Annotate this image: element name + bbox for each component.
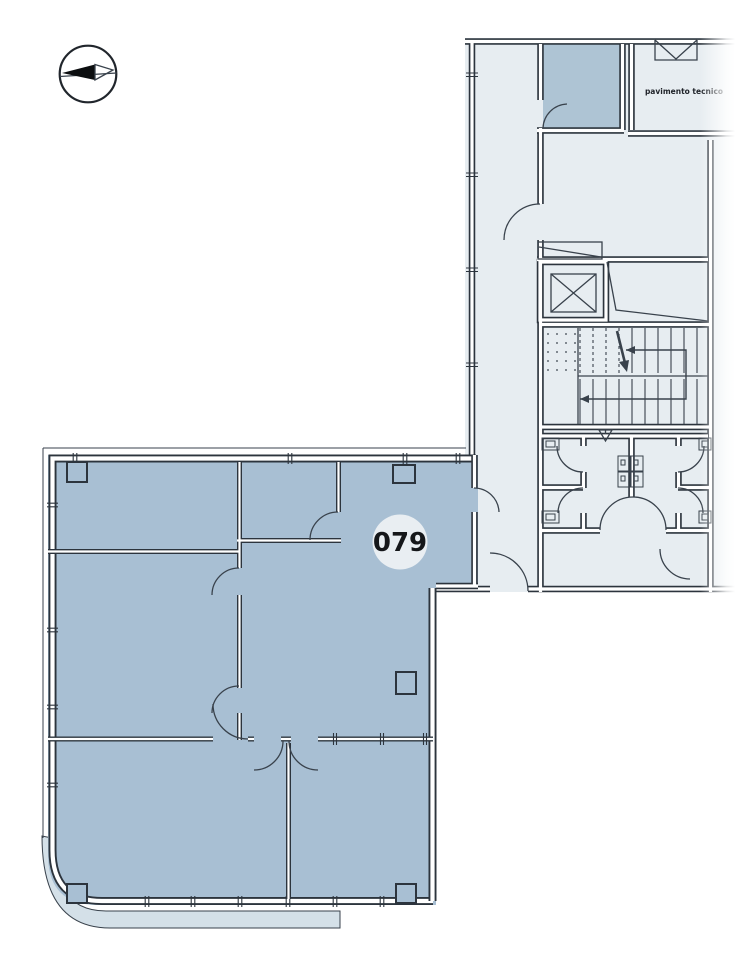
unit-number-badge[interactable]: 079 bbox=[373, 515, 428, 570]
floor-plan-page: pavimento tecnico 079 bbox=[0, 0, 735, 956]
north-arrow-icon bbox=[60, 46, 117, 103]
floor-plan-canvas: pavimento tecnico 079 bbox=[0, 0, 735, 956]
unit-number-label: 079 bbox=[373, 528, 427, 558]
storage-room-floor bbox=[543, 44, 621, 128]
plan-crop-fade bbox=[700, 30, 735, 600]
